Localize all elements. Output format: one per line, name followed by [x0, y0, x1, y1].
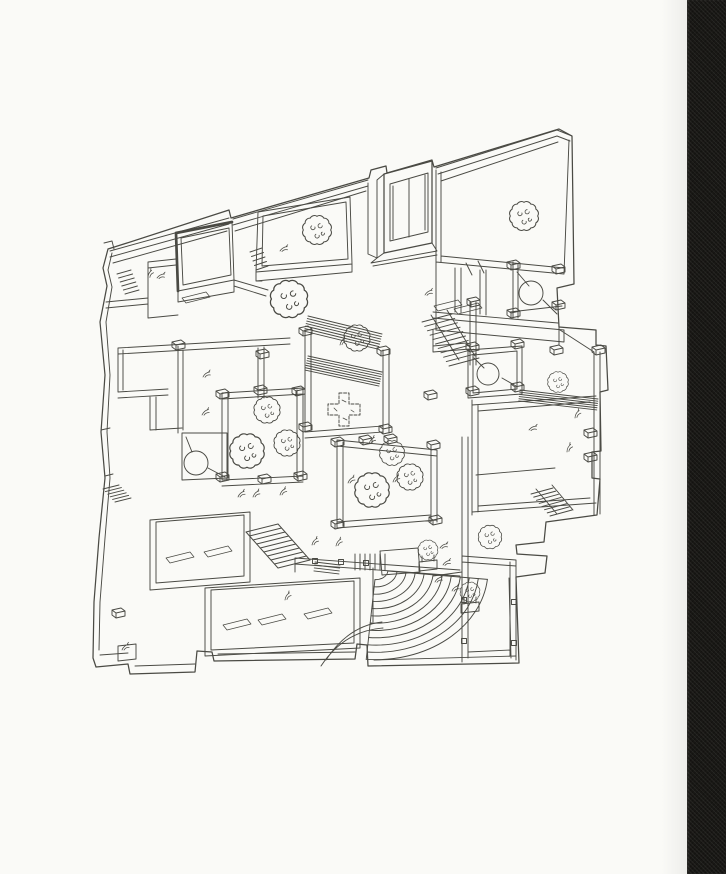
court-circle: [477, 363, 499, 385]
stair-tread: [246, 524, 278, 532]
court-2: [337, 440, 437, 528]
leaf-mark: [564, 442, 573, 452]
tree-symbol: [230, 434, 264, 468]
wall-posts: [313, 559, 517, 646]
middle-rooms: [118, 330, 437, 528]
leaf-mark: [157, 270, 166, 280]
book-binding-strip: [687, 0, 726, 874]
stair-tread: [256, 266, 268, 270]
band-line: [305, 368, 379, 384]
leaf-mark: [202, 407, 210, 416]
leaf-mark: [529, 422, 538, 432]
band-line: [308, 356, 382, 372]
lower-rooms: [118, 512, 460, 661]
column-cap: [552, 264, 565, 274]
tree-symbol: [355, 473, 389, 507]
leaf-mark: [122, 642, 129, 650]
leaf-mark: [425, 287, 433, 296]
floor-mat: [258, 614, 286, 625]
stair-tread: [257, 536, 289, 544]
floor-mat: [166, 552, 194, 563]
tree-symbol: [274, 430, 300, 456]
upper-right-court: [433, 140, 569, 342]
column-cap: [511, 339, 524, 349]
column-cap: [592, 345, 605, 355]
leaf-mark: [238, 489, 245, 497]
court-circle: [519, 281, 543, 305]
band-line: [315, 562, 340, 565]
axonometric-floorplan-drawing: [0, 0, 726, 874]
stair-tread: [250, 248, 262, 252]
room-ll1: [150, 512, 250, 590]
floor-mat: [434, 300, 462, 311]
leaf-mark: [203, 369, 211, 378]
stair-rails: [246, 524, 310, 568]
gate-detail: [368, 173, 437, 266]
tree-symbol: [303, 216, 332, 245]
court-1: [222, 388, 303, 486]
east-walls: [462, 327, 600, 570]
band-line: [306, 363, 380, 379]
column-cap: [112, 608, 125, 618]
tree-symbol: [254, 397, 280, 423]
column-cap: [359, 435, 372, 445]
leaf-mark: [348, 475, 355, 483]
band-line: [306, 365, 380, 381]
stair-tread: [271, 552, 303, 560]
column-cap: [467, 297, 480, 307]
tree-symbol: [270, 280, 307, 317]
leaf-mark: [443, 557, 452, 566]
stair-tread: [250, 528, 282, 536]
band-line: [314, 568, 339, 571]
stair-tread: [274, 556, 306, 564]
planter-tree-symbol: [418, 540, 438, 560]
column-cap: [427, 440, 440, 450]
leaf-mark: [283, 591, 292, 600]
parapet-walls: [110, 130, 572, 263]
stair-tread: [252, 253, 264, 257]
entrance-gate: [368, 161, 437, 266]
room-ll2: [205, 578, 360, 656]
floor-mat: [304, 608, 332, 619]
stair-tread: [253, 532, 285, 540]
band-line: [315, 565, 340, 568]
column-cap: [216, 389, 229, 399]
stair-tread: [253, 257, 265, 261]
lower-right-court: [462, 556, 516, 662]
left-room-band: [106, 259, 178, 318]
court-walls: [462, 556, 516, 662]
stair-tread: [119, 274, 133, 278]
band-line: [314, 571, 339, 574]
band-line: [305, 370, 379, 386]
stair-tread: [278, 560, 310, 568]
column-cap: [299, 422, 312, 432]
leaf-mark: [280, 243, 289, 252]
leaf-mark: [573, 408, 582, 418]
amphitheatre-edge: [366, 580, 375, 660]
parapet-lines: [110, 130, 572, 263]
stair-tread: [120, 278, 134, 282]
column-cap: [258, 474, 271, 484]
column-caps: [112, 260, 605, 618]
tree-symbol: [478, 525, 501, 548]
column-cap: [584, 452, 597, 462]
column-cap: [331, 437, 344, 447]
stair-tread: [122, 282, 136, 286]
stair-tread: [125, 290, 139, 294]
tree-symbol: [548, 372, 569, 393]
tree-symbol: [397, 464, 423, 490]
amphitheatre-arc: [371, 575, 433, 616]
column-cap: [377, 346, 390, 356]
amphitheatre-steps: [366, 571, 487, 660]
right-wing: [431, 302, 600, 570]
column-cap: [466, 342, 479, 352]
book-page: [0, 0, 726, 874]
stair-tread: [117, 270, 131, 274]
band-line: [308, 316, 382, 334]
floor-mat: [223, 619, 251, 630]
amphitheatre-arc: [373, 573, 416, 601]
column-cap: [379, 424, 392, 434]
leaf-mark: [145, 268, 154, 278]
leaf-mark: [440, 540, 449, 550]
cross-shrub-symbol: [328, 393, 360, 426]
column-cap: [550, 345, 563, 355]
column-cap: [424, 390, 437, 400]
stair-tread: [123, 286, 137, 290]
column-cap: [584, 428, 597, 438]
band-line: [307, 358, 381, 374]
court-circle: [184, 451, 208, 475]
band-line: [307, 361, 381, 377]
leaf-mark: [279, 487, 287, 495]
stair-tread: [260, 540, 292, 548]
stair-tread: [264, 544, 296, 552]
tree-symbol: [510, 202, 539, 231]
leaf-mark: [335, 537, 343, 546]
leaf-mark: [311, 536, 319, 545]
amphitheatre-edge: [388, 571, 487, 579]
stair-tread: [267, 548, 299, 556]
floor-mat: [204, 546, 232, 557]
band-line: [306, 326, 380, 344]
leaf-mark: [253, 489, 260, 497]
leaf-mark: [452, 583, 460, 592]
leaf-mark: [393, 474, 400, 482]
wall-post: [339, 560, 344, 565]
